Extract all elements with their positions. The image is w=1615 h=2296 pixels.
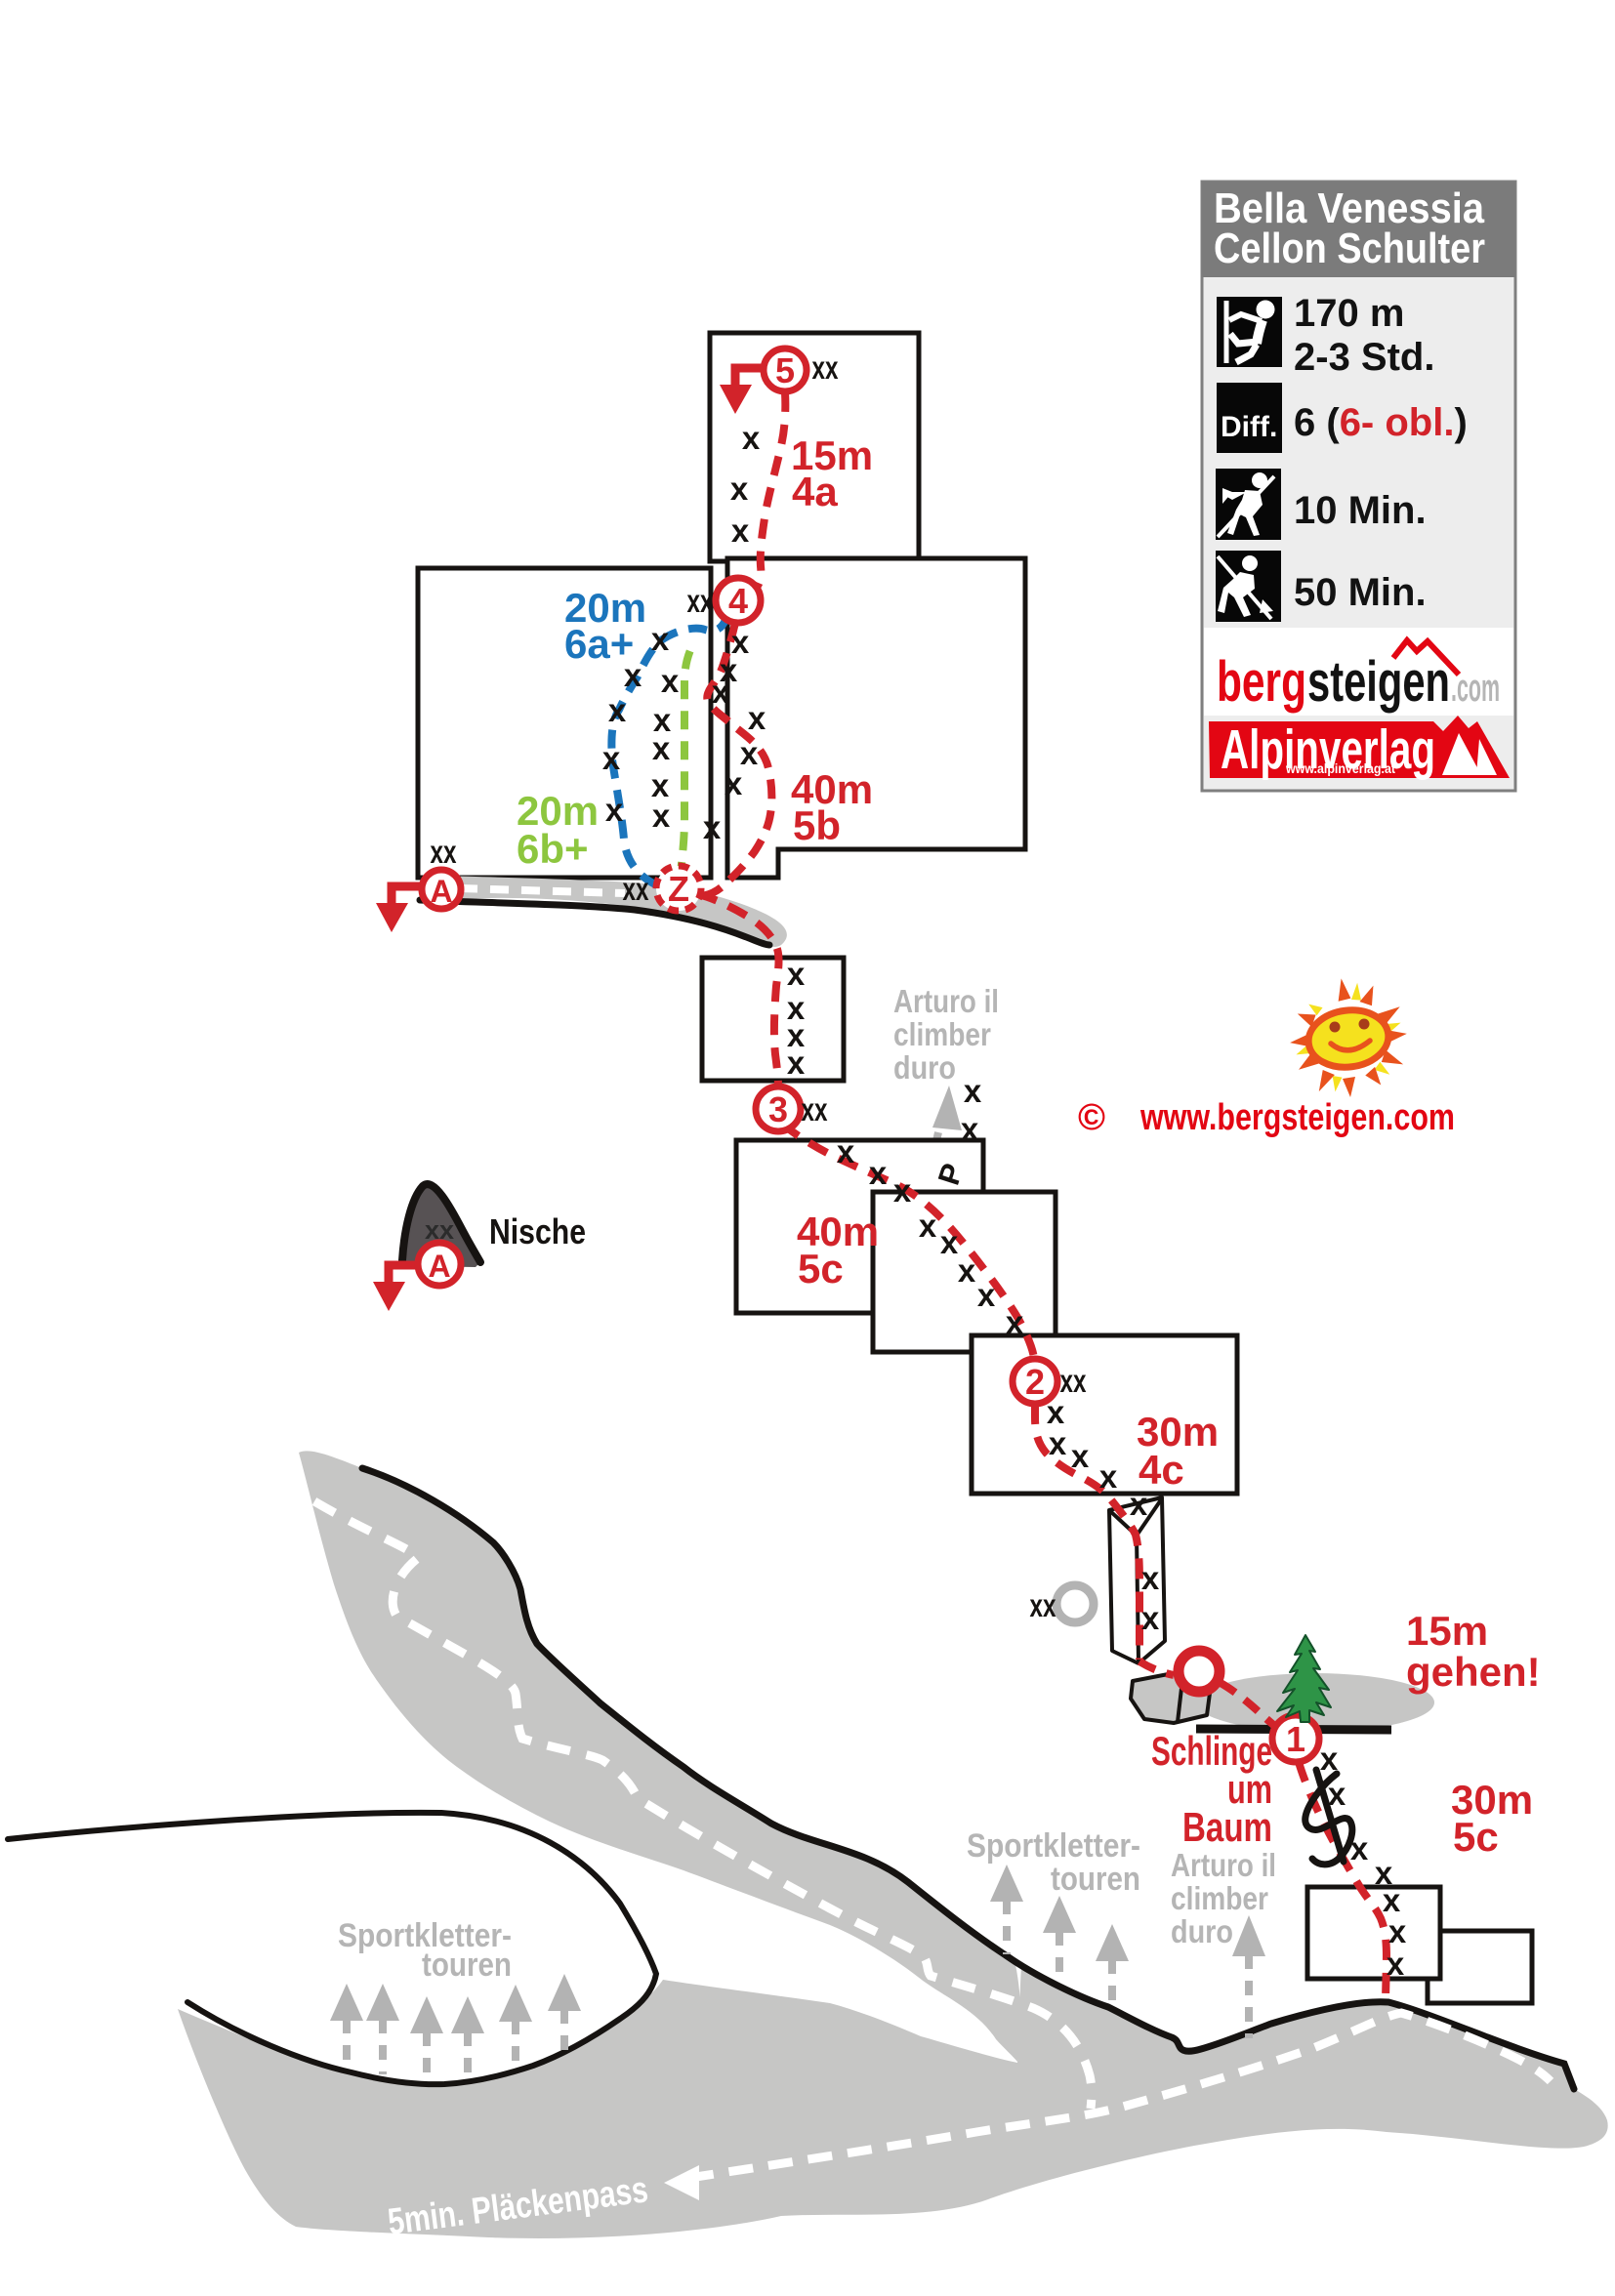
svg-text:x: x xyxy=(940,1224,959,1260)
svg-text:xx: xx xyxy=(802,1091,828,1127)
svg-text:climber: climber xyxy=(1171,1880,1268,1916)
svg-text:x: x xyxy=(961,1111,979,1147)
svg-text:x: x xyxy=(742,420,761,456)
svg-text:©: © xyxy=(1078,1097,1105,1138)
svg-text:x: x xyxy=(712,674,730,710)
svg-text:climber: climber xyxy=(893,1016,991,1052)
svg-text:x: x xyxy=(661,663,680,699)
svg-text:x: x xyxy=(730,471,749,507)
svg-text:Baum: Baum xyxy=(1182,1804,1272,1850)
svg-text:x: x xyxy=(1130,1486,1148,1522)
svg-text:x: x xyxy=(837,1133,855,1169)
svg-text:x: x xyxy=(1071,1438,1090,1474)
svg-text:Arturo il: Arturo il xyxy=(1171,1847,1276,1883)
svg-text:x: x xyxy=(893,1172,912,1209)
svg-text:x: x xyxy=(1006,1304,1024,1340)
svg-text:x: x xyxy=(977,1277,996,1313)
svg-text:x: x xyxy=(1328,1776,1346,1812)
svg-text:Arturo il: Arturo il xyxy=(893,983,999,1019)
svg-text:x: x xyxy=(652,730,671,766)
svg-text:10 Min.: 10 Min. xyxy=(1294,489,1427,532)
svg-text:touren: touren xyxy=(422,1947,512,1984)
svg-text:x: x xyxy=(787,1045,806,1081)
svg-text:2-3 Std.: 2-3 Std. xyxy=(1294,336,1434,379)
svg-text:x: x xyxy=(602,740,621,776)
svg-text:50 Min.: 50 Min. xyxy=(1294,571,1427,614)
svg-text:6b+: 6b+ xyxy=(517,826,589,872)
svg-text:6 (6- obl.): 6 (6- obl.) xyxy=(1294,401,1468,444)
svg-text:xx: xx xyxy=(1030,1587,1056,1623)
svg-text:Diff.: Diff. xyxy=(1221,411,1277,443)
svg-text:xx: xx xyxy=(623,871,649,907)
svg-text:Cellon Schulter: Cellon Schulter xyxy=(1214,225,1485,272)
svg-text:3: 3 xyxy=(768,1089,788,1129)
svg-text:x: x xyxy=(725,765,743,801)
svg-text:x: x xyxy=(731,512,750,549)
svg-text:x: x xyxy=(608,692,627,728)
svg-text:x: x xyxy=(624,657,642,693)
svg-text:5c: 5c xyxy=(798,1246,844,1291)
svg-text:xx: xx xyxy=(425,1215,454,1245)
svg-text:x: x xyxy=(958,1252,976,1289)
svg-text:2: 2 xyxy=(1025,1362,1045,1402)
svg-text:x: x xyxy=(1350,1830,1369,1866)
svg-text:xx: xx xyxy=(687,583,714,619)
svg-text:x: x xyxy=(1141,1560,1160,1596)
svg-text:A: A xyxy=(428,1249,450,1284)
svg-text:4a: 4a xyxy=(792,469,838,514)
svg-text:gehen!: gehen! xyxy=(1406,1649,1541,1695)
svg-text:x: x xyxy=(964,1073,982,1109)
svg-text:x: x xyxy=(1388,1913,1407,1949)
svg-text:x: x xyxy=(1320,1741,1339,1777)
svg-text:x: x xyxy=(651,621,670,657)
svg-text:1: 1 xyxy=(1286,1719,1305,1759)
svg-text:x: x xyxy=(748,700,766,736)
svg-text:4: 4 xyxy=(728,581,748,621)
svg-text:x: x xyxy=(869,1155,888,1191)
svg-text:x: x xyxy=(1049,1425,1067,1461)
svg-text:15m: 15m xyxy=(1406,1608,1488,1654)
svg-text:berg: berg xyxy=(1217,650,1306,714)
svg-text:x: x xyxy=(1141,1600,1160,1636)
svg-text:x: x xyxy=(703,809,722,845)
svg-text:x: x xyxy=(740,735,759,771)
svg-text:Sportkletter-: Sportkletter- xyxy=(967,1827,1140,1865)
svg-text:x: x xyxy=(1387,1946,1405,1982)
svg-text:x: x xyxy=(919,1208,937,1244)
svg-text:5: 5 xyxy=(775,350,795,390)
svg-text:5b: 5b xyxy=(793,802,841,848)
svg-text:x: x xyxy=(652,798,671,834)
svg-text:xx: xx xyxy=(812,349,839,386)
svg-text:duro: duro xyxy=(893,1049,956,1086)
svg-text:touren: touren xyxy=(1051,1861,1140,1898)
svg-text:Z: Z xyxy=(668,869,689,909)
svg-text:5c: 5c xyxy=(1453,1814,1499,1860)
svg-text:x: x xyxy=(605,792,624,828)
svg-text:xx: xx xyxy=(431,834,457,870)
svg-text:170 m: 170 m xyxy=(1294,292,1404,335)
svg-text:www.bergsteigen.com: www.bergsteigen.com xyxy=(1139,1097,1455,1138)
svg-text:steigen: steigen xyxy=(1307,650,1450,714)
svg-text:Nische: Nische xyxy=(489,1211,586,1251)
svg-text:www.alpinverlag.at: www.alpinverlag.at xyxy=(1285,760,1395,776)
svg-text:x: x xyxy=(787,956,806,992)
svg-text:x: x xyxy=(1099,1458,1118,1495)
svg-text:A: A xyxy=(430,874,452,909)
svg-text:duro: duro xyxy=(1171,1913,1233,1949)
